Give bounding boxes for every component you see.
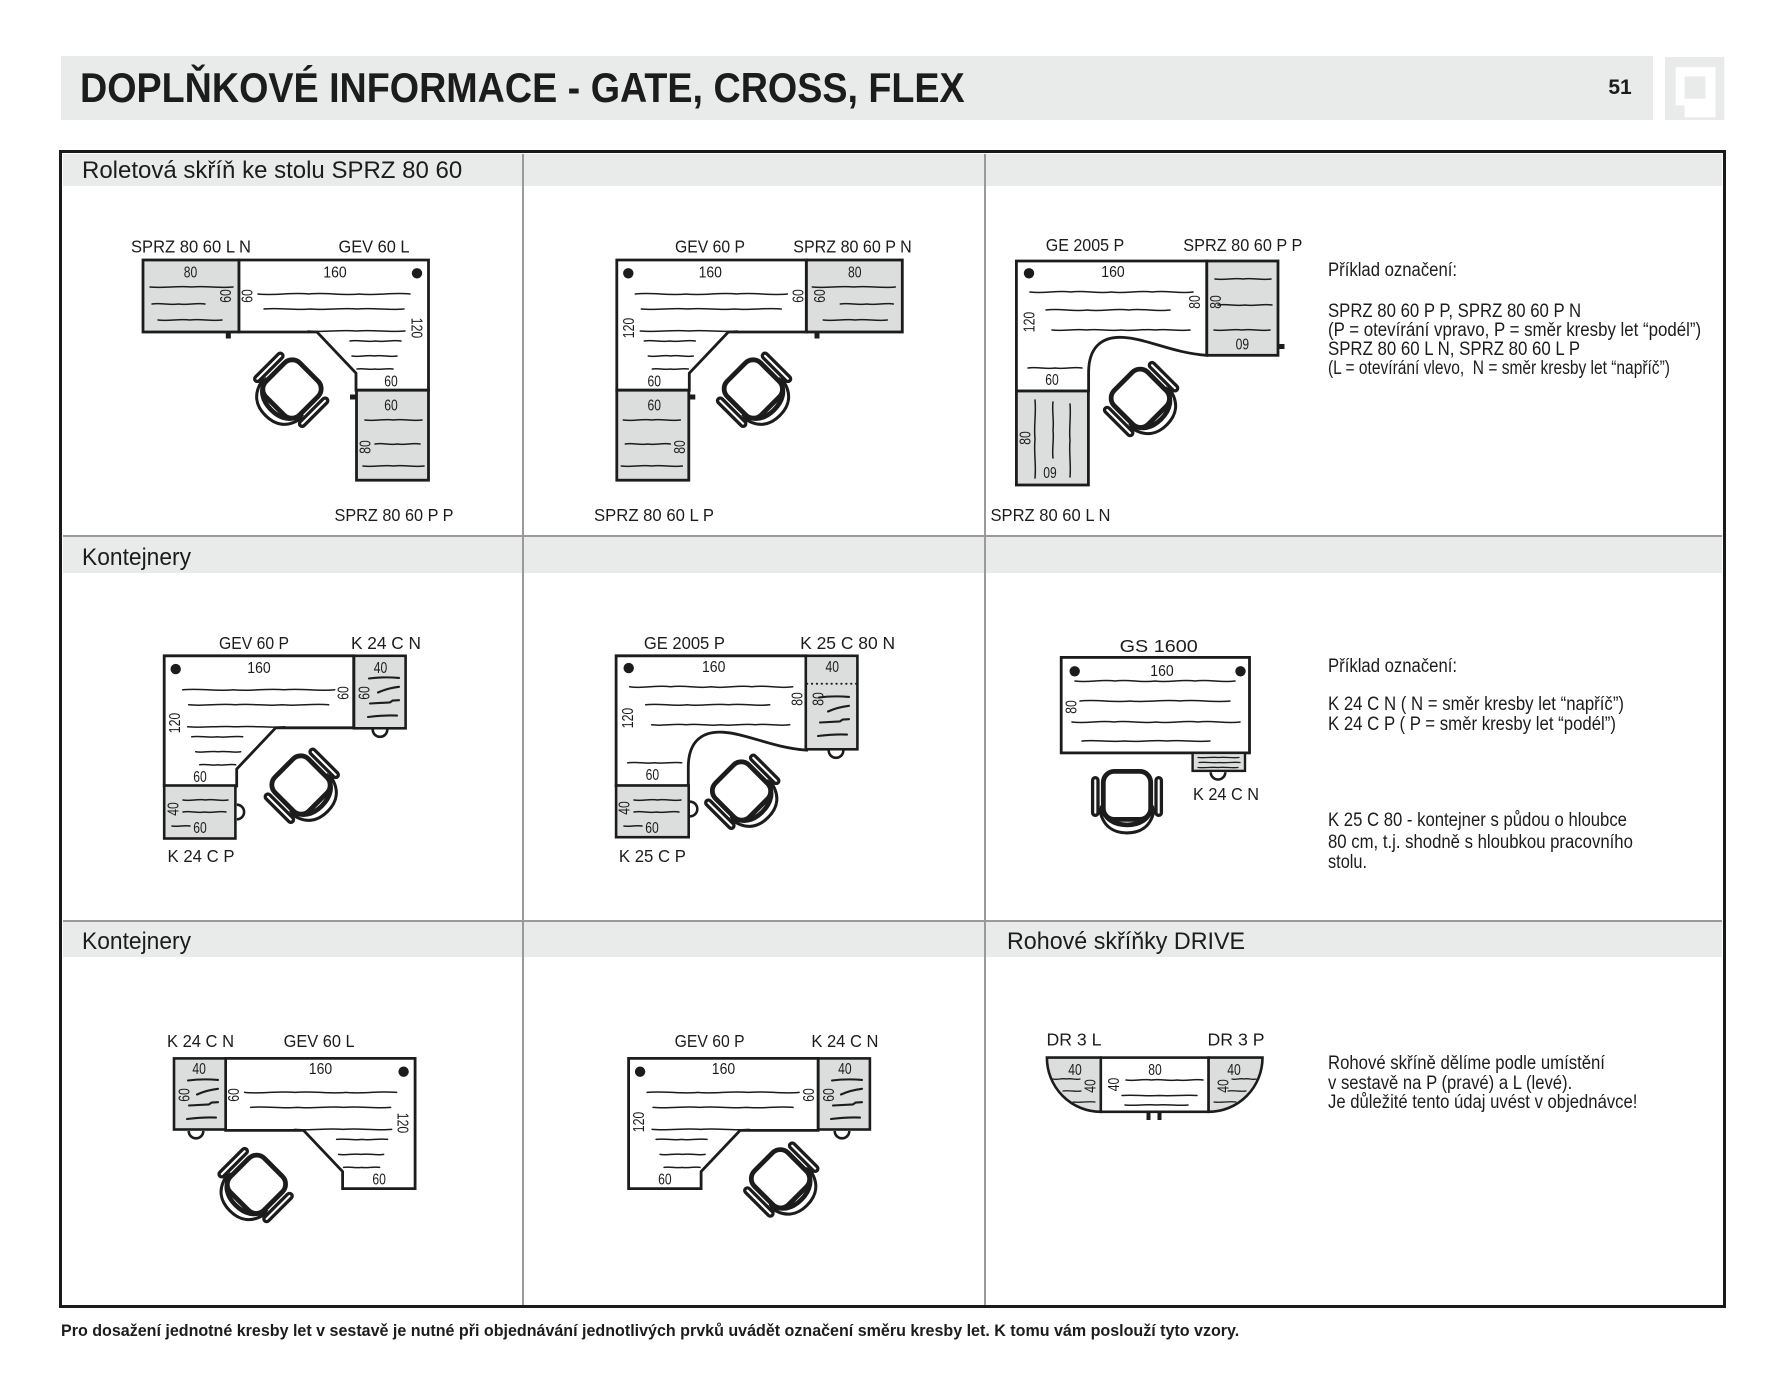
svg-text:60: 60 [357,686,374,700]
svg-text:K 25 C P: K 25 C P [619,846,686,866]
svg-text:GE 2005 P: GE 2005 P [1046,235,1125,255]
svg-text:80: 80 [358,440,375,454]
svg-text:120: 120 [393,1113,410,1134]
svg-text:120: 120 [621,317,638,338]
svg-text:120: 120 [167,712,184,733]
svg-text:40: 40 [1068,1062,1082,1079]
svg-text:120: 120 [631,1111,648,1132]
svg-text:60: 60 [218,289,235,303]
svg-text:40: 40 [192,1061,206,1078]
svg-text:120: 120 [408,318,425,339]
svg-text:40: 40 [826,659,840,676]
svg-text:GEV 60 L: GEV 60 L [284,1031,355,1051]
svg-text:SPRZ 80 60 L N: SPRZ 80 60 L N [991,505,1111,525]
svg-text:SPRZ 80 60 P P: SPRZ 80 60 P P [335,505,454,525]
svg-text:160: 160 [1101,264,1125,281]
svg-text:K 25 C 80 N: K 25 C 80 N [800,633,895,653]
svg-text:160: 160 [712,1061,736,1078]
svg-text:60: 60 [240,289,257,303]
svg-text:80: 80 [1148,1062,1162,1079]
svg-text:40: 40 [1106,1077,1123,1091]
svg-text:60: 60 [336,686,353,700]
svg-text:120: 120 [620,707,637,728]
svg-text:40: 40 [166,802,183,816]
svg-text:60: 60 [193,769,207,786]
svg-text:GS 1600: GS 1600 [1120,636,1198,656]
svg-text:80: 80 [811,692,828,706]
svg-text:60: 60 [812,289,829,303]
svg-text:K 24 C N: K 24 C N [351,633,421,653]
svg-text:120: 120 [1021,311,1038,332]
svg-text:40: 40 [1083,1079,1100,1093]
svg-text:60: 60 [645,820,659,837]
svg-text:60: 60 [648,398,662,415]
svg-text:GEV 60 P: GEV 60 P [219,633,289,653]
svg-text:40: 40 [1216,1079,1233,1093]
svg-text:160: 160 [309,1061,333,1078]
svg-text:80: 80 [184,265,198,282]
svg-text:60: 60 [790,289,807,303]
svg-text:60: 60 [648,373,662,390]
svg-text:60: 60 [226,1088,243,1102]
svg-text:60: 60 [1235,335,1249,352]
svg-text:40: 40 [838,1061,852,1078]
svg-text:60: 60 [177,1088,194,1102]
svg-text:60: 60 [646,767,660,784]
svg-text:80: 80 [789,692,806,706]
svg-text:40: 40 [1227,1062,1241,1079]
svg-text:60: 60 [1043,463,1057,480]
svg-text:SPRZ 80 60 P P: SPRZ 80 60 P P [1183,235,1302,255]
svg-text:160: 160 [702,659,726,676]
svg-text:60: 60 [821,1088,838,1102]
svg-text:60: 60 [658,1172,672,1189]
svg-text:60: 60 [384,373,398,390]
svg-text:SPRZ 80 60 P N: SPRZ 80 60 P N [793,237,912,257]
svg-text:SPRZ 80 60 L P: SPRZ 80 60 L P [594,505,714,525]
svg-text:K 24 C N: K 24 C N [1193,784,1259,804]
svg-text:160: 160 [323,265,347,282]
svg-text:40: 40 [617,801,634,815]
svg-text:80: 80 [1017,431,1034,445]
svg-text:60: 60 [384,398,398,415]
svg-text:60: 60 [372,1172,386,1189]
svg-text:GEV 60 P: GEV 60 P [675,1031,745,1051]
svg-text:40: 40 [374,660,388,677]
svg-text:80: 80 [848,265,862,282]
svg-text:K 24 C N: K 24 C N [811,1031,878,1051]
svg-text:K 24 C N: K 24 C N [167,1031,234,1051]
svg-text:160: 160 [247,660,271,677]
svg-text:160: 160 [1150,663,1174,680]
svg-text:60: 60 [1045,372,1059,389]
svg-text:60: 60 [193,820,207,837]
svg-text:GEV 60 L: GEV 60 L [339,237,410,257]
svg-text:SPRZ 80 60 L N: SPRZ 80 60 L N [131,237,251,257]
svg-text:80: 80 [672,440,689,454]
svg-text:80: 80 [1064,700,1081,714]
svg-text:DR 3 P: DR 3 P [1208,1030,1265,1050]
svg-text:DR 3 L: DR 3 L [1047,1030,1102,1050]
svg-text:60: 60 [801,1088,818,1102]
svg-text:GEV 60 P: GEV 60 P [675,237,745,257]
svg-text:GE 2005 P: GE 2005 P [644,633,725,653]
svg-text:K 24 C P: K 24 C P [168,846,235,866]
svg-text:80: 80 [1208,295,1225,309]
svg-text:160: 160 [699,265,723,282]
svg-text:80: 80 [1187,295,1204,309]
